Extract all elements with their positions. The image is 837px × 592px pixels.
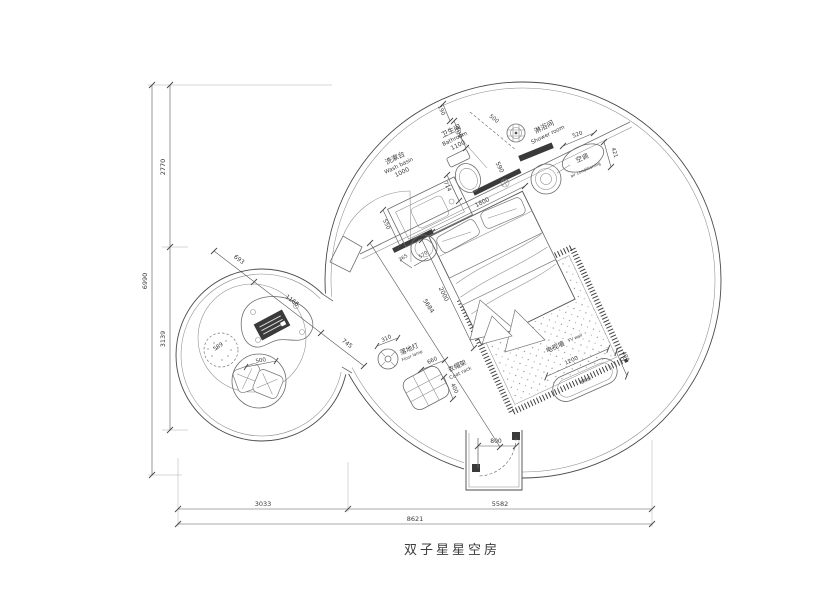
dim-left-lower: 3139: [159, 331, 167, 348]
entrance: 800: [464, 430, 522, 490]
table-tray: [254, 310, 291, 341]
bathroom-door: [455, 112, 516, 168]
dim-rack-w: 660: [427, 356, 440, 366]
door-post: [472, 464, 480, 472]
dim-entry-door: 800: [490, 438, 502, 445]
dim-bottom-total: 8621: [407, 515, 424, 523]
dim-wall-inner: 590: [494, 161, 505, 175]
dim-bottom-right: 5582: [492, 500, 509, 508]
dim-shower-width: 520: [572, 130, 584, 139]
dim-bottom-left: 3033: [255, 500, 272, 508]
shower-symbol: [507, 124, 525, 142]
dim-axis-a: 693: [232, 254, 246, 267]
dim-shower-door: 500: [488, 114, 500, 126]
dim-ac-depth: 421: [610, 147, 619, 159]
dim-wall-top: 190: [436, 105, 446, 118]
pouf: [204, 333, 238, 367]
side-room-walls: [176, 269, 348, 441]
kidney-table: [241, 296, 313, 347]
ac-label-zh: 空调: [574, 151, 590, 165]
drawing-title: 双子星星空房: [404, 542, 500, 558]
dim-bed-length: 2000: [437, 286, 450, 303]
dim-left-upper: 2770: [159, 159, 167, 176]
coat-rack: [400, 364, 451, 413]
dim-vanity-depth: 550: [381, 219, 391, 232]
ac-label-en: air conditioning: [569, 161, 601, 179]
dim-left-total: 6990: [141, 273, 149, 290]
floor-plan-canvas: 800: [0, 0, 837, 592]
dim-cushion: 500: [255, 357, 267, 365]
dim-room-diagonal: 5684: [421, 298, 435, 315]
dim-stool-a: 365: [398, 253, 409, 263]
floor-plan-page: 800: [0, 0, 837, 592]
